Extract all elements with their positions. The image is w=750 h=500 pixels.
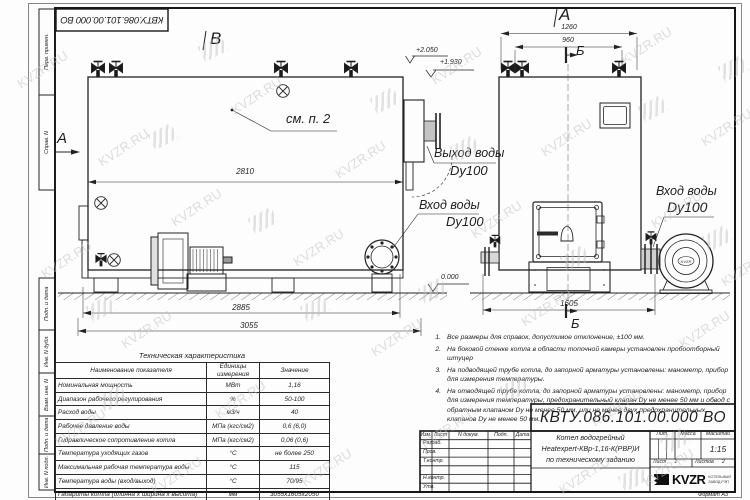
instrument-boss-icon [95, 197, 108, 210]
kvzr-flag-icon [654, 474, 669, 485]
valve-icon [516, 62, 529, 78]
row-units: мм [207, 488, 260, 500]
valve-icon [110, 62, 123, 78]
row-value: 1,16 [260, 379, 330, 393]
row-units: МПа (кгс/см2) [207, 420, 260, 434]
col-header: Единицы измерения [207, 363, 260, 379]
table-row: Максимальная рабочая температура воды°С1… [56, 461, 330, 475]
row-units: МПа (кгс/см2) [207, 433, 260, 447]
row-units: м3/ч [207, 406, 260, 420]
note-item: 2. На боковой стенке котла в области топ… [433, 345, 733, 364]
fan-blower [641, 232, 713, 294]
valve-icon [92, 62, 105, 78]
note-number: 2. [433, 345, 441, 364]
sheets-label: Листов [695, 460, 714, 465]
side-nozzle [79, 206, 88, 240]
stamp-col-header: Изм. [420, 431, 432, 440]
table-row: Расход водым3/ч40 [56, 406, 330, 420]
table-row: Рабочее давление водыМПа (кгс/см2)0,6 (6… [56, 420, 330, 434]
row-units: °С [207, 474, 260, 488]
kvzr-logo-subtext: КОТЕЛЬНЫЙ ЗАВОД РЭП [708, 475, 731, 484]
table-row: Номинальная мощностьМВт1,16 [56, 379, 330, 393]
margin-label: Инв. N подл. [39, 454, 55, 490]
stamp-row-label: Пров. [423, 448, 483, 457]
dim-2810 [88, 180, 403, 184]
sheet-value: 1 [674, 460, 677, 465]
product-name-line: Heatexpert-КВр-1,16-К(РВР)И [542, 444, 640, 455]
product-name-line: по техническому заданию [546, 455, 635, 466]
sheets-value: 2 [722, 460, 725, 465]
dim-2885-label: 2885 [232, 304, 250, 312]
dim-3055-label: 3055 [240, 322, 258, 330]
view-b-boiler-side [56, 31, 496, 336]
row-value: 50-100 [260, 392, 330, 406]
row-name: Диапазон рабочего регулирования [56, 392, 207, 406]
note-item: 3. На подводящей трубе котла, до запорно… [433, 366, 733, 385]
table-row: Температура воды (вход/выход)°С70/95 [56, 474, 330, 488]
dim-960 [515, 45, 622, 66]
burner-pedestal [529, 262, 610, 292]
row-value: 70/95 [260, 474, 330, 488]
outlet-stub [481, 235, 500, 276]
drawing-sheet: Перв. примен. Справ. N Подп. и дата Инв.… [0, 0, 750, 500]
outlet-label: Выход воды [434, 147, 504, 160]
col-header: Наименование показателя [56, 363, 207, 379]
scale-value: 1:15 [701, 439, 735, 459]
note-text: На подводящей трубе котла, до запорной а… [447, 366, 733, 385]
margin-label: Подп. и дата [39, 416, 55, 454]
table-row: Диапазон рабочего регулирования%50-100 [56, 392, 330, 406]
row-name: Максимальная рабочая температура воды [56, 461, 207, 475]
note-text: На боковой стенке котла в области топочн… [447, 345, 733, 364]
view-a-label: A [559, 6, 570, 23]
tech-table-title: Техническая характеристика [55, 351, 329, 360]
sheets-cell: Листов 2 [695, 459, 735, 467]
scale-header: Масштаб [701, 431, 735, 439]
stamp-row-label: Разраб. [423, 440, 483, 449]
note-number: 3. [433, 366, 441, 385]
row-value: 40 [260, 406, 330, 420]
row-value: 0,6 (6,0) [260, 420, 330, 434]
see-note-label: см. п. 2 [286, 112, 330, 125]
row-units: % [207, 392, 260, 406]
elev-0000-label: 0.000 [441, 274, 459, 281]
row-name: Температура воды (вход/выход) [56, 474, 207, 488]
section-b-bottom-label: Б [571, 317, 579, 330]
door-latch [561, 226, 573, 241]
inlet-label-a: Вход воды [656, 185, 717, 198]
view-a-boiler-front [470, 9, 730, 318]
elev-1930-label: +1.930 [440, 59, 462, 66]
row-name: Расход воды [56, 406, 207, 420]
margin-label: Перв. примен. [39, 9, 55, 95]
note-number: 4. [433, 387, 441, 425]
section-b-markers [554, 9, 578, 318]
inlet-flange [365, 240, 399, 292]
valve-icon [613, 62, 626, 78]
section-b-top-label: Б [576, 44, 584, 57]
dim-960-label: 960 [562, 37, 574, 44]
col-header: Значение [260, 363, 330, 379]
stamp-col-header: Дата [514, 431, 531, 440]
furnace-door [533, 202, 604, 262]
pump-motor-unit [151, 233, 232, 291]
instrument-boss-icon [277, 85, 290, 98]
row-value: 0,06 (0,6) [260, 433, 330, 447]
row-value: 115 [260, 461, 330, 475]
row-units: °С [207, 461, 260, 475]
note-number: 1. [433, 333, 441, 343]
row-units: °С [207, 447, 260, 461]
sheet-cell: Лист 1 [653, 459, 692, 467]
kvzr-logo-text: KVZR [672, 472, 705, 487]
stamp-row-label: Т.контр. [423, 457, 483, 466]
stamp-col-header: Подп. [488, 431, 514, 440]
margin-label: Взам. инв. N [39, 373, 55, 416]
product-name-line: Котел водогрейный [556, 433, 624, 444]
valve-icon [502, 62, 515, 78]
fan-badge: KVZR [681, 259, 692, 264]
note-item: 1. Все размеры для справок, допустимое о… [433, 333, 733, 343]
row-name: Номинальная мощность [56, 379, 207, 393]
format-label: Формат А3 [698, 493, 728, 499]
stamp-row-label: Утв. [423, 483, 483, 492]
valve-icon [345, 62, 358, 78]
table-row: Габариты котла (длинна х ширина х высота… [56, 488, 330, 500]
instrument-boss-icon [108, 254, 121, 267]
dim-2810-label: 2810 [236, 168, 254, 176]
inlet-dn-label-b: Dy100 [446, 215, 484, 228]
row-name: Рабочее давление воды [56, 420, 207, 434]
row-value: не более 250 [260, 447, 330, 461]
row-name: Гидравлическое сопротивление котла [56, 433, 207, 447]
view-b-label: B [210, 30, 221, 47]
stamp-row-label: Н.контр. [423, 475, 483, 484]
logo-sub-line: ЗАВОД РЭП [708, 480, 731, 485]
dim-1605-label: 1605 [560, 300, 578, 308]
valve-icon [275, 62, 288, 78]
top-doc-number: КВТУ.086.101.00.000 ВО [56, 9, 168, 31]
inlet-label-b: Вход воды [419, 199, 480, 212]
row-name: Температура уходящих газов [56, 447, 207, 461]
inlet-dn-label-a: Dy100 [667, 200, 707, 214]
margin-label: Справ. N [39, 95, 55, 190]
product-name: Котел водогрейный Heatexpert-КВр-1,16-К(… [531, 431, 650, 468]
margin-label: Подп. и дата [39, 278, 55, 330]
mass-header: Масса [675, 431, 701, 439]
tech-table-header: Наименование показателя Единицы измерени… [56, 363, 330, 379]
tech-table: Техническая характеристика Наименование … [55, 351, 329, 500]
company-logo: KVZR КОТЕЛЬНЫЙ ЗАВОД РЭП [650, 467, 735, 492]
note-text: Все размеры для справок, допустимое откл… [447, 333, 645, 343]
sheet-label: Лист [653, 460, 666, 465]
outlet-dn-label: Dy100 [450, 164, 488, 177]
row-units: МВт [207, 379, 260, 393]
margin-label: Инв. N дубл. [39, 330, 55, 373]
elev-2050-label: +2.050 [416, 47, 438, 54]
drain-valve-icon [96, 254, 106, 266]
section-a-label: A [57, 131, 67, 146]
door-handle [537, 232, 558, 236]
stamp-col-header: N докум. [449, 431, 488, 440]
section-a-arrow [56, 31, 206, 155]
table-row: Температура уходящих газов°Сне более 250 [56, 447, 330, 461]
stamp-col-header: Лист [432, 431, 449, 440]
row-value: 3055х1605х2050 [260, 488, 330, 500]
dim-1260-label: 1260 [561, 24, 577, 31]
boiler-skid [88, 270, 403, 278]
table-row: Гидравлическое сопротивление котлаМПа (к… [56, 433, 330, 447]
lit-header: Лит. [650, 431, 675, 439]
row-name: Габариты котла (длинна х ширина х высота… [56, 488, 207, 500]
doc-number: КВТУ.086.101.00.000 ВО [531, 404, 735, 431]
